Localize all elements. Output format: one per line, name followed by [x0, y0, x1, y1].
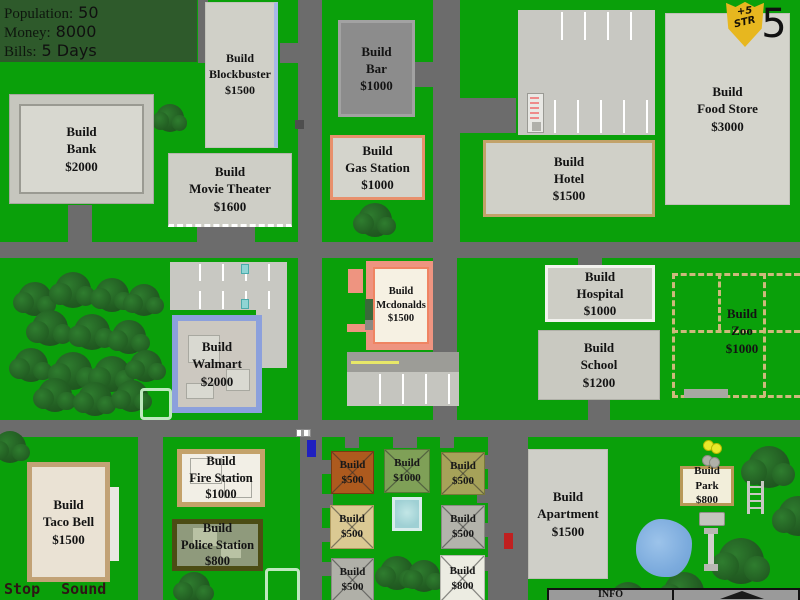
build-label: Build [553, 488, 583, 505]
tree [128, 284, 160, 316]
build-label: Build [394, 456, 420, 471]
building-price: $2000 [65, 158, 98, 175]
build-label: Build [206, 453, 235, 470]
tree [32, 310, 68, 346]
building-price: $1500 [553, 187, 586, 204]
car-red [504, 533, 513, 549]
building-name: Walmart [192, 355, 242, 372]
build-label: Build [585, 268, 615, 285]
swimming-pool [392, 497, 422, 531]
building-name: Mcdonalds [376, 299, 426, 313]
road-stub-blockbuster [280, 43, 298, 63]
lot-price: $500 [452, 474, 474, 489]
building-name: Movie Theater [189, 180, 271, 197]
building-price: $1200 [583, 374, 616, 391]
tree [408, 560, 440, 592]
build-house-lot-gray-mid[interactable]: Build $500 [441, 505, 485, 549]
build-label: Build [215, 163, 245, 180]
build-label: Build [340, 565, 366, 580]
info-tab[interactable]: INFO [549, 590, 674, 600]
build-label: Build [53, 496, 83, 513]
driveway-theater [197, 227, 255, 242]
taco-bell-awning [110, 487, 119, 561]
tree [74, 314, 110, 350]
build-gas-station-button[interactable]: Build Gas Station $1000 [330, 135, 425, 200]
build-mcdonalds-button[interactable]: Build Mcdonalds $1500 [373, 267, 429, 344]
bills-value: 5 Days [42, 41, 97, 60]
lawn-notch [393, 437, 417, 448]
parking-lines [178, 264, 280, 281]
build-label: Build [66, 123, 96, 140]
building-name: Hospital [577, 285, 624, 302]
parking-lines [178, 291, 280, 309]
ladder-icon [530, 97, 539, 122]
tree [358, 203, 392, 237]
building-price: $1500 [388, 312, 414, 326]
pond [636, 519, 692, 577]
expand-arrow-icon [720, 591, 764, 599]
build-bank-button[interactable]: Build Bank $2000 [10, 95, 153, 203]
empty-lot-outline [140, 388, 172, 420]
build-label: Build [362, 142, 392, 159]
park-bench [699, 512, 725, 526]
driveway-school [588, 400, 610, 420]
parking-lines [533, 100, 653, 133]
tree [14, 348, 48, 382]
zoo-fence [672, 273, 675, 397]
building-price: $1000 [360, 77, 393, 94]
audio-controls: Stop Sound [4, 580, 118, 598]
build-house-lot-green[interactable]: Build $1000 [384, 449, 430, 493]
building-name: Fire Station [189, 470, 252, 487]
building-name: Gas Station [345, 159, 410, 176]
mcdonalds-wing [348, 269, 363, 293]
building-name: Bar [366, 60, 387, 77]
building-name: Taco Bell [43, 513, 94, 530]
tree [718, 538, 764, 584]
road-paint-yellow [351, 361, 399, 364]
building-price: $3000 [711, 118, 744, 135]
build-label: Build [450, 459, 476, 474]
population-row: Population: 50 [4, 3, 197, 22]
build-label: Build [340, 458, 366, 473]
driveway-bank [68, 205, 92, 242]
building-name: School [581, 356, 618, 373]
build-movie-theater-button[interactable]: Build Movie Theater $1600 [168, 153, 292, 227]
lot-price: $1000 [393, 471, 421, 486]
tree [112, 320, 146, 354]
bills-label: Bills: [4, 44, 37, 61]
manhole [295, 120, 304, 129]
building-price: $1000 [584, 302, 617, 319]
build-label: Build [389, 285, 414, 299]
building-name: Food Store [697, 100, 758, 117]
car-blue [307, 440, 316, 457]
seesaw-cap [704, 528, 718, 534]
road-stub-bar [415, 62, 433, 87]
building-price: $1000 [726, 340, 759, 357]
handicap-spot-sign [241, 299, 249, 309]
building-price: $800 [205, 553, 230, 570]
build-fire-station-button[interactable]: Build Fire Station $1000 [177, 449, 265, 507]
build-house-lot-white[interactable]: Build $800 [440, 555, 485, 600]
build-bar-button[interactable]: Build Bar $1000 [338, 20, 415, 117]
build-label: Build [450, 564, 476, 579]
build-house-lot-orange[interactable]: Build $500 [331, 451, 374, 494]
info-bar-right[interactable] [674, 590, 798, 600]
building-price: $1500 [225, 83, 255, 99]
empty-lot-outline [265, 568, 300, 600]
build-label: Build [203, 520, 232, 537]
parking-lines [358, 374, 456, 404]
build-label: Build [727, 305, 757, 322]
road-stub-parking [460, 98, 516, 133]
build-label: Build [361, 43, 391, 60]
build-house-lot-khaki[interactable]: Build $500 [441, 452, 485, 495]
build-blockbuster-button[interactable]: Build Blockbuster $1500 [205, 2, 278, 148]
monkey-bars [747, 481, 764, 514]
structure-base [532, 122, 541, 131]
lot-price: $800 [452, 579, 474, 594]
build-walmart-button[interactable]: Build Walmart $2000 [172, 315, 262, 413]
building-name: Park [695, 479, 718, 494]
building-name: Zoo [731, 322, 753, 339]
building-name: Apartment [537, 505, 598, 522]
lot-price: $500 [342, 580, 364, 595]
building-name: Police Station [181, 537, 254, 554]
lot-price: $500 [452, 527, 474, 542]
build-police-station-button[interactable]: Build Police Station $800 [172, 519, 263, 571]
tree [55, 272, 91, 308]
zoo-fence [672, 273, 800, 276]
building-price: $1000 [361, 176, 394, 193]
building-name: Bank [67, 140, 97, 157]
build-label: Build [339, 512, 365, 527]
tree [156, 104, 184, 132]
money-row: Money: 8000 [4, 22, 197, 41]
build-hospital-button[interactable]: Build Hospital $1000 [545, 265, 655, 322]
building-price: $1000 [205, 486, 236, 503]
build-school-button[interactable]: Build School $1200 [538, 330, 660, 400]
tree [130, 350, 162, 382]
building-price: $800 [696, 493, 718, 508]
lot-price: $500 [342, 473, 364, 488]
parking-lines [540, 12, 652, 40]
building-price: $1500 [552, 523, 585, 540]
stop-button[interactable]: Stop [4, 580, 40, 598]
build-label: Build [584, 339, 614, 356]
population-label: Population: [4, 6, 73, 23]
population-value: 50 [78, 3, 98, 22]
build-label: Build [554, 153, 584, 170]
seesaw-cap [704, 564, 718, 571]
build-zoo-button[interactable]: Build Zoo $1000 [707, 306, 777, 356]
lawn-notch [440, 437, 454, 448]
status-panel: Population: 50 Money: 8000 Bills: 5 Days [0, 0, 197, 62]
seesaw-pole [708, 531, 714, 566]
lawn-notch [345, 437, 359, 448]
building-price: $2000 [201, 373, 234, 390]
city-map: Build Bank $2000 Build Blockbuster $1500… [0, 0, 800, 600]
zoo-shed [684, 389, 728, 398]
build-apartment-button[interactable]: Build Apartment $1500 [528, 449, 608, 579]
money-value: 8000 [56, 22, 97, 41]
mcdonalds-hedge [365, 299, 373, 320]
build-label: Build [226, 51, 254, 67]
build-label: Build [712, 83, 742, 100]
building-price: $1600 [214, 198, 247, 215]
parking-structure [527, 93, 544, 133]
tree [0, 431, 26, 463]
strength-counter: 5 [757, 0, 791, 48]
bills-row: Bills: 5 Days [4, 41, 197, 60]
building-name: Blockbuster [209, 67, 271, 83]
tree [38, 378, 72, 412]
tree [178, 572, 210, 600]
build-hotel-button[interactable]: Build Hotel $1500 [483, 140, 655, 217]
flower-gray [709, 457, 720, 468]
info-bar[interactable]: INFO [547, 588, 800, 600]
building-name: Hotel [554, 170, 584, 187]
flower-yellow [711, 443, 722, 454]
truck-white [296, 429, 311, 437]
build-label: Build [450, 512, 476, 527]
handicap-spot-sign [241, 264, 249, 274]
money-label: Money: [4, 25, 51, 42]
sound-button[interactable]: Sound [61, 580, 106, 598]
build-label: Build [202, 338, 232, 355]
build-park-button[interactable]: Build Park $800 [680, 466, 734, 506]
build-house-lot-gray-low[interactable]: Build $500 [331, 558, 374, 600]
lot-price: $500 [341, 527, 363, 542]
building-price: $1500 [52, 531, 85, 548]
build-house-lot-wheat[interactable]: Build $500 [330, 505, 374, 549]
build-taco-bell-button[interactable]: Build Taco Bell $1500 [27, 462, 110, 582]
tree [78, 382, 112, 416]
